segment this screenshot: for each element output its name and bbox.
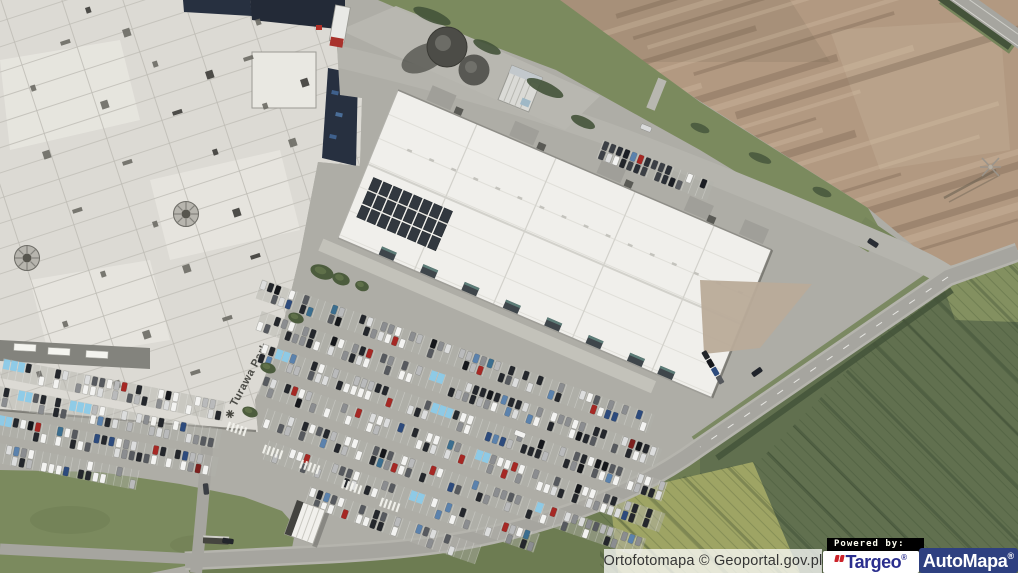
attribution-text: Ortofotomapa © Geoportal.gov.pl bbox=[604, 553, 823, 569]
targeo-logo[interactable]: Targeo ® bbox=[823, 551, 919, 573]
aerial-photo: Turawa Park bbox=[0, 0, 1018, 573]
targeo-quote-icon bbox=[835, 555, 844, 562]
truck-trailer bbox=[86, 350, 108, 358]
automapa-registered-mark: ® bbox=[1007, 552, 1014, 561]
truck-trailer bbox=[48, 347, 70, 355]
map-viewport[interactable]: Turawa Park Ort bbox=[0, 0, 1018, 573]
targeo-name: Targeo bbox=[845, 553, 901, 571]
powered-by-label: Powered by: bbox=[827, 538, 924, 551]
map-attribution: Ortofotomapa © Geoportal.gov.pl bbox=[604, 549, 822, 573]
truck-trailer bbox=[14, 343, 36, 351]
automapa-name: AutoMapa bbox=[923, 552, 1008, 570]
automapa-logo[interactable]: AutoMapa ® bbox=[919, 548, 1018, 573]
targeo-registered-mark: ® bbox=[901, 554, 907, 562]
